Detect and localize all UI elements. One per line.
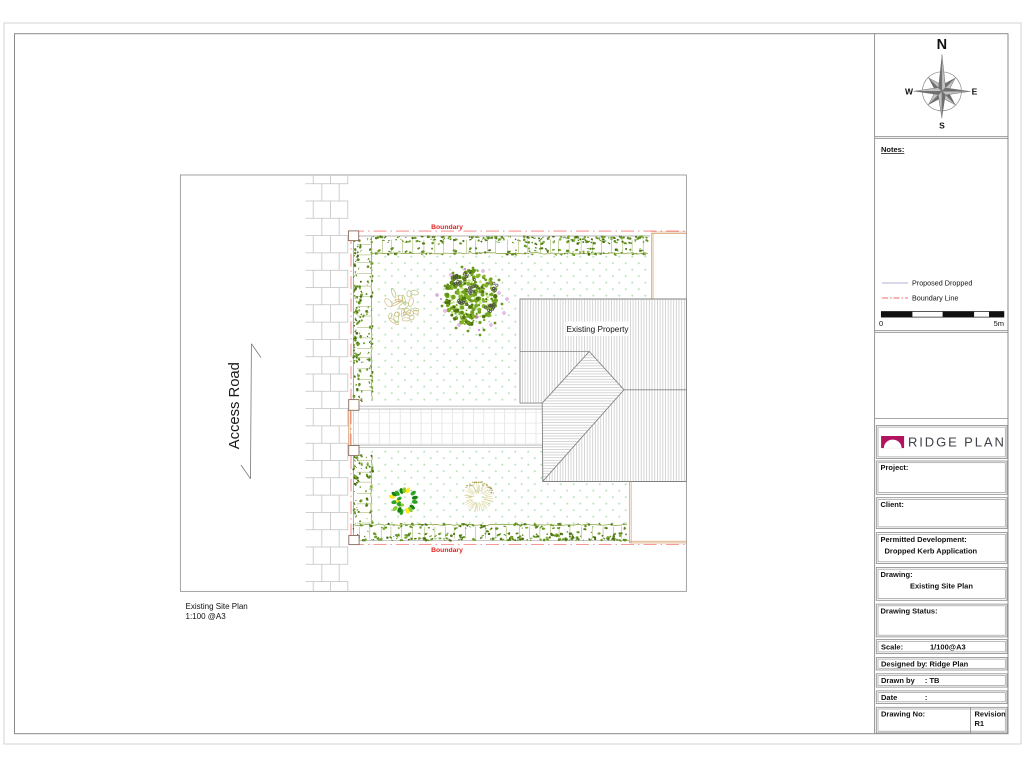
svg-text:Proposed Dropped: Proposed Dropped xyxy=(912,279,972,288)
svg-text:Drawing No:: Drawing No: xyxy=(881,710,925,719)
svg-text:E: E xyxy=(972,86,978,96)
svg-text:Existing Site Plan: Existing Site Plan xyxy=(186,602,248,611)
svg-text:S: S xyxy=(939,121,945,131)
svg-text:Project:: Project: xyxy=(881,463,909,472)
svg-text:Drawing:: Drawing: xyxy=(881,570,913,579)
svg-text:RIDGE PLAN: RIDGE PLAN xyxy=(908,435,1006,450)
svg-text:Scale:: Scale: xyxy=(881,643,903,652)
svg-text:Boundary: Boundary xyxy=(431,224,463,231)
svg-text:R1: R1 xyxy=(975,719,985,728)
svg-text:Notes:: Notes: xyxy=(881,145,904,154)
svg-text:Permitted Development:: Permitted Development: xyxy=(881,535,967,544)
svg-text:: TB: : TB xyxy=(925,676,940,685)
svg-text:1/100@A3: 1/100@A3 xyxy=(930,643,966,652)
svg-text:Boundary: Boundary xyxy=(431,547,463,554)
svg-text:Boundary Line: Boundary Line xyxy=(912,294,958,303)
svg-text:N: N xyxy=(937,37,947,53)
svg-text:Existing Site Plan: Existing Site Plan xyxy=(910,582,973,591)
svg-text:Drawn by: Drawn by xyxy=(881,676,916,685)
svg-text:1:100 @A3: 1:100 @A3 xyxy=(186,612,227,621)
svg-text:: Ridge Plan: : Ridge Plan xyxy=(925,660,969,669)
svg-text:Designed by: Designed by xyxy=(881,660,926,669)
svg-text::: : xyxy=(925,693,928,702)
svg-text:Client:: Client: xyxy=(881,500,904,509)
svg-text:Dropped Kerb Application: Dropped Kerb Application xyxy=(885,547,978,556)
svg-text:5m: 5m xyxy=(994,319,1004,328)
svg-text:Date: Date xyxy=(881,693,897,702)
svg-text:Existing Property: Existing Property xyxy=(567,325,630,334)
svg-text:Drawing Status:: Drawing Status: xyxy=(881,607,938,616)
svg-text:Revision: Revision xyxy=(975,710,1007,719)
svg-text:W: W xyxy=(905,86,914,96)
svg-text:0: 0 xyxy=(879,319,883,328)
svg-text:Access Road: Access Road xyxy=(227,362,243,449)
